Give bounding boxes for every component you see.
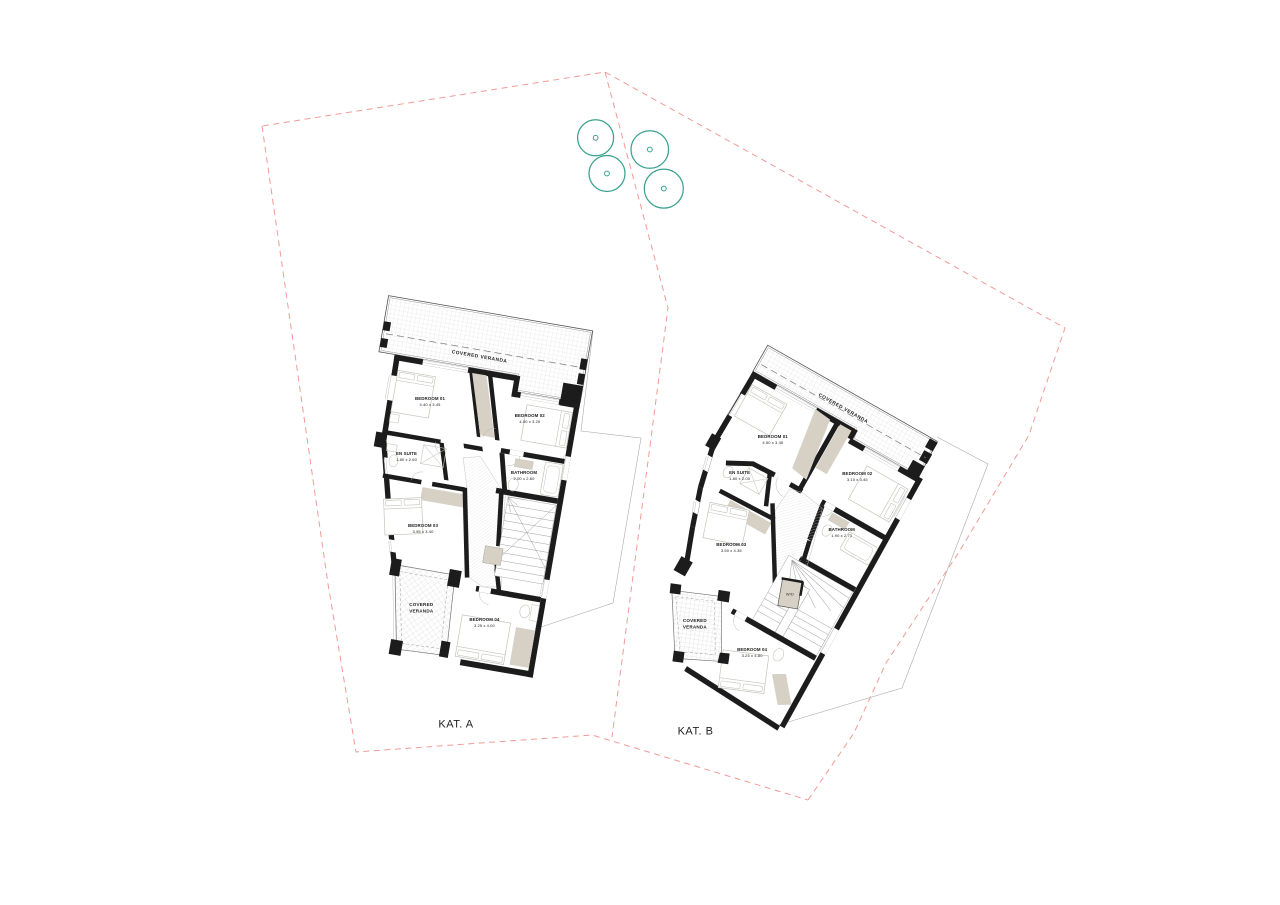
svg-text:3.25 x 4.00: 3.25 x 4.00 xyxy=(474,623,496,628)
svg-text:KAT. B: KAT. B xyxy=(678,726,714,738)
svg-text:BATHROOM: BATHROOM xyxy=(511,470,538,475)
svg-text:EN SUITE: EN SUITE xyxy=(396,451,417,456)
svg-text:BEDROOM 03: BEDROOM 03 xyxy=(716,542,746,547)
svg-text:4.40 x 3.45: 4.40 x 3.45 xyxy=(420,402,442,407)
svg-text:1.80 x 2.00: 1.80 x 2.00 xyxy=(729,476,751,481)
svg-text:BEDROOM 01: BEDROOM 01 xyxy=(415,396,445,401)
svg-text:BEDROOM 04: BEDROOM 04 xyxy=(737,647,767,652)
svg-text:3.95 x 3.40: 3.95 x 3.40 xyxy=(413,529,435,534)
svg-text:4.50 x 3.45: 4.50 x 3.45 xyxy=(762,440,784,445)
svg-text:4.00 x 3.20: 4.00 x 3.20 xyxy=(519,419,541,424)
svg-text:BEDROOM 04: BEDROOM 04 xyxy=(469,617,499,622)
svg-text:COVERED: COVERED xyxy=(683,618,708,623)
svg-text:1.80 x 2.60: 1.80 x 2.60 xyxy=(396,457,418,462)
svg-text:3.50 x 4.35: 3.50 x 4.35 xyxy=(721,548,743,553)
svg-text:VERANDA: VERANDA xyxy=(683,625,708,630)
svg-text:W/D: W/D xyxy=(786,593,794,597)
svg-text:3.10 x 3.45: 3.10 x 3.45 xyxy=(847,477,869,482)
svg-text:2.00 x 2.60: 2.00 x 2.60 xyxy=(514,476,536,481)
svg-text:BATHROOM: BATHROOM xyxy=(829,527,856,532)
svg-text:BEDROOM 02: BEDROOM 02 xyxy=(515,413,545,418)
svg-text:KAT. A: KAT. A xyxy=(438,719,473,731)
svg-text:VERANDA: VERANDA xyxy=(409,609,434,614)
svg-text:COVERED: COVERED xyxy=(409,602,434,607)
svg-text:BEDROOM 02: BEDROOM 02 xyxy=(842,471,872,476)
svg-text:EN SUITE: EN SUITE xyxy=(729,470,750,475)
svg-text:3.25 x 4.80: 3.25 x 4.80 xyxy=(742,653,764,658)
svg-text:BEDROOM 01: BEDROOM 01 xyxy=(758,434,788,439)
svg-text:BEDROOM 03: BEDROOM 03 xyxy=(408,523,438,528)
svg-text:1.90 x 2.73: 1.90 x 2.73 xyxy=(831,533,853,538)
